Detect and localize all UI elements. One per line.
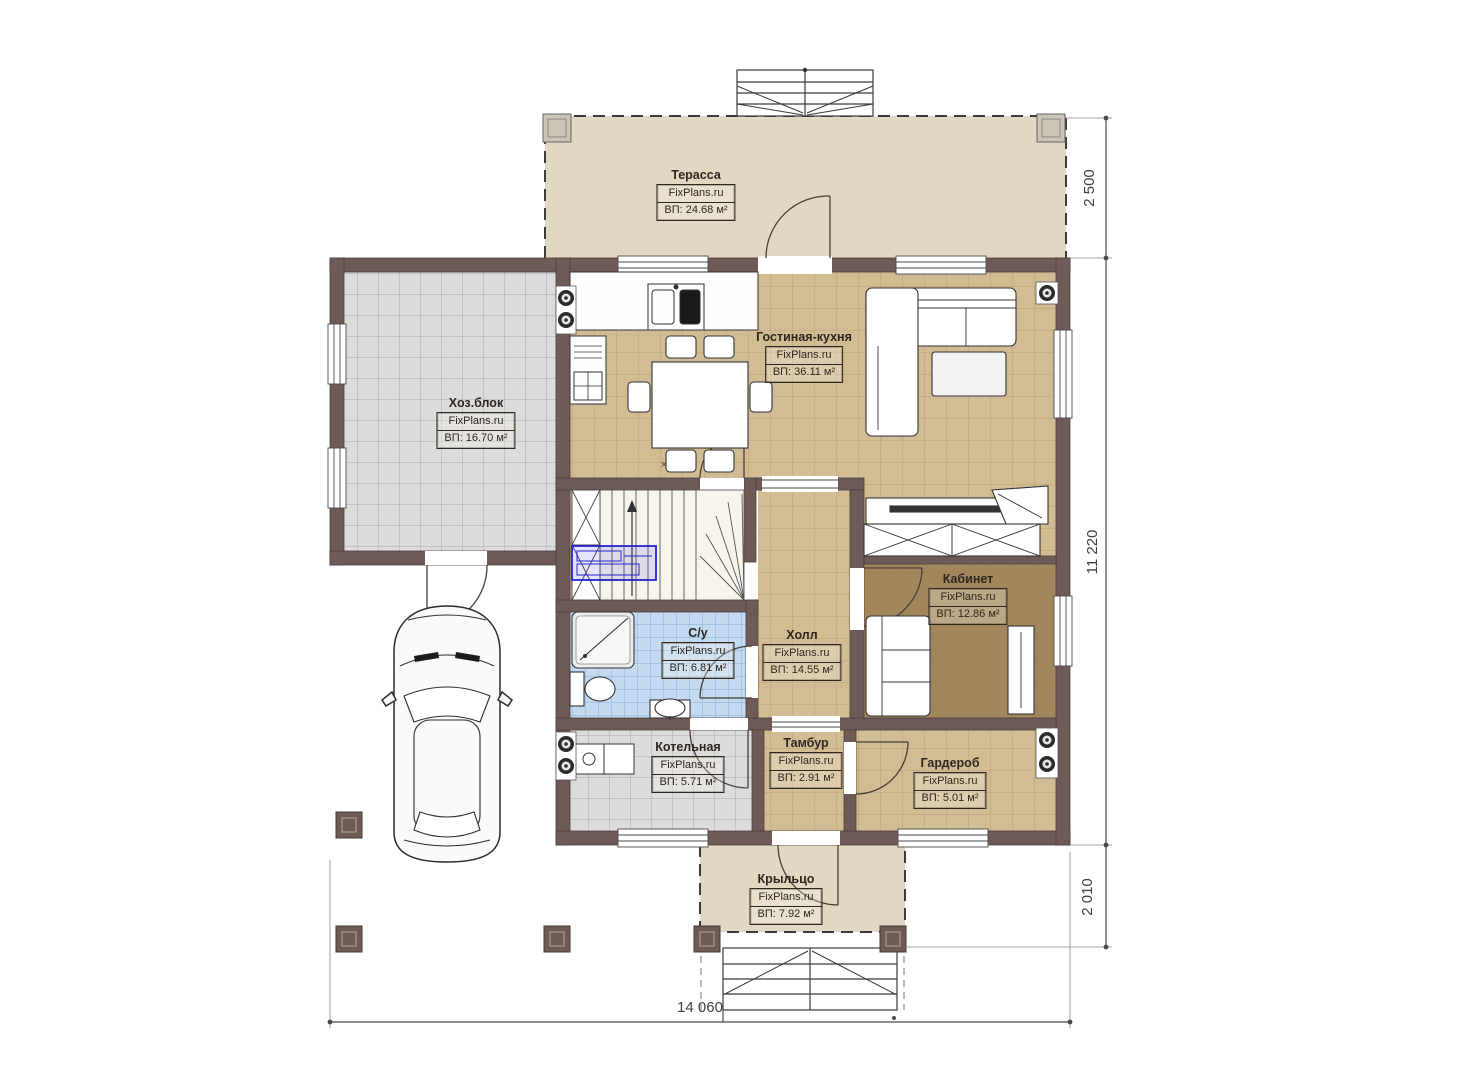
room-name: Тамбур	[769, 736, 842, 750]
sink-bowl	[655, 699, 685, 717]
terrace-post	[543, 114, 571, 142]
room-area: ВП: 24.68 м²	[657, 202, 734, 220]
vent-icon	[1039, 756, 1055, 772]
room-area: ВП: 5.71 м²	[652, 774, 723, 792]
chair	[666, 336, 696, 358]
brand-label: FixPlans.ru	[652, 757, 723, 774]
bottom-entrance-steps	[723, 948, 897, 1010]
brand-label: FixPlans.ru	[763, 645, 840, 662]
room-info-box: FixPlans.ru ВП: 14.55 м²	[762, 644, 841, 681]
room-info-box: FixPlans.ru ВП: 2.91 м²	[769, 752, 842, 789]
stairs-blue-annotation	[572, 546, 656, 580]
window	[328, 448, 346, 508]
window	[328, 324, 346, 384]
tv	[890, 506, 1016, 512]
room-info-box: FixPlans.ru ВП: 5.71 м²	[651, 756, 724, 793]
room-label-bathroom: С/у FixPlans.ru ВП: 6.81 м²	[661, 626, 734, 679]
dimension-label-right-bottom: 2 010	[1079, 878, 1096, 916]
room-label-tambur: Тамбур FixPlans.ru ВП: 2.91 м²	[769, 736, 842, 789]
chair	[750, 382, 772, 412]
window	[1054, 596, 1072, 666]
room-label-porch: Крыльцо FixPlans.ru ВП: 7.92 м²	[749, 872, 822, 925]
room-name: Гардероб	[913, 756, 986, 770]
dimension-label-right-top: 2 500	[1081, 169, 1098, 207]
vent-icon	[1039, 732, 1055, 748]
boiler-equipment	[574, 744, 634, 774]
room-info-box: FixPlans.ru ВП: 36.11 м²	[765, 346, 843, 383]
brand-label: FixPlans.ru	[662, 643, 733, 660]
chair	[704, 450, 734, 472]
room-name: Хоз.блок	[436, 396, 515, 410]
post	[336, 926, 362, 952]
brand-label: FixPlans.ru	[766, 347, 842, 364]
terrace-post	[1037, 114, 1065, 142]
floor-plan-page: × 2 500 11 220 2 010 14 060 Терасса FixP…	[0, 0, 1473, 1080]
chair	[666, 450, 696, 472]
room-name: Холл	[762, 628, 841, 642]
room-area: ВП: 5.01 м²	[914, 790, 985, 808]
room-name: Терасса	[656, 168, 735, 182]
room-name: Кабинет	[928, 572, 1007, 586]
vent-icon	[1039, 285, 1055, 301]
room-info-box: FixPlans.ru ВП: 12.86 м²	[928, 588, 1007, 625]
window	[1054, 330, 1072, 418]
toilet-tank	[570, 672, 584, 706]
dimension-label-right-middle: 11 220	[1084, 530, 1101, 575]
terrace-area	[543, 114, 1066, 258]
room-label-terrace: Терасса FixPlans.ru ВП: 24.68 м²	[656, 168, 735, 221]
room-name: Котельная	[651, 740, 724, 754]
brand-label: FixPlans.ru	[929, 589, 1006, 606]
car-top-view	[382, 606, 512, 862]
toilet-bowl	[585, 677, 615, 701]
window	[898, 829, 988, 847]
dining-table	[652, 362, 748, 448]
window	[618, 829, 708, 847]
room-label-boiler: Котельная FixPlans.ru ВП: 5.71 м²	[651, 740, 724, 793]
post	[694, 926, 720, 952]
room-info-box: FixPlans.ru ВП: 16.70 м²	[436, 412, 515, 449]
room-name: Крыльцо	[749, 872, 822, 886]
post	[880, 926, 906, 952]
staircase	[572, 490, 744, 600]
post	[336, 812, 362, 838]
chair	[628, 382, 650, 412]
brand-label: FixPlans.ru	[437, 413, 514, 430]
top-entrance-steps	[737, 68, 873, 116]
room-label-hozblok: Хоз.блок FixPlans.ru ВП: 16.70 м²	[436, 396, 515, 449]
chair	[704, 336, 734, 358]
brand-label: FixPlans.ru	[657, 185, 734, 202]
vent-icon	[558, 736, 574, 752]
room-label-living-kitchen: Гостиная-кухня FixPlans.ru ВП: 36.11 м²	[756, 330, 852, 383]
room-label-kabinet: Кабинет FixPlans.ru ВП: 12.86 м²	[928, 572, 1007, 625]
coffee-table	[932, 352, 1006, 396]
brand-label: FixPlans.ru	[770, 753, 841, 770]
room-area: ВП: 14.55 м²	[763, 662, 840, 680]
room-area: ВП: 6.81 м²	[662, 660, 733, 678]
window	[618, 256, 708, 274]
room-label-garderob: Гардероб FixPlans.ru ВП: 5.01 м²	[913, 756, 986, 809]
room-area: ВП: 36.11 м²	[766, 364, 842, 382]
floor-hall	[758, 490, 850, 730]
room-info-box: FixPlans.ru ВП: 24.68 м²	[656, 184, 735, 221]
floor-plan-drawing: × 2 500 11 220 2 010 14 060	[0, 0, 1473, 1080]
floor-cross-marker: ×	[661, 459, 667, 471]
dimension-label-bottom: 14 060	[677, 999, 723, 1016]
vent-icon	[558, 290, 574, 306]
room-area: ВП: 2.91 м²	[770, 770, 841, 788]
vent-icon	[558, 758, 574, 774]
room-info-box: FixPlans.ru ВП: 7.92 м²	[749, 888, 822, 925]
room-label-hall: Холл FixPlans.ru ВП: 14.55 м²	[762, 628, 841, 681]
vent-icon	[558, 312, 574, 328]
brand-label: FixPlans.ru	[914, 773, 985, 790]
post	[544, 926, 570, 952]
room-name: С/у	[661, 626, 734, 640]
office-sofa	[866, 616, 930, 716]
room-area: ВП: 7.92 м²	[750, 906, 821, 924]
room-info-box: FixPlans.ru ВП: 5.01 м²	[913, 772, 986, 809]
window	[896, 256, 986, 274]
room-area: ВП: 16.70 м²	[437, 430, 514, 448]
room-area: ВП: 12.86 м²	[929, 606, 1006, 624]
room-name: Гостиная-кухня	[756, 330, 852, 344]
room-info-box: FixPlans.ru ВП: 6.81 м²	[661, 642, 734, 679]
brand-label: FixPlans.ru	[750, 889, 821, 906]
